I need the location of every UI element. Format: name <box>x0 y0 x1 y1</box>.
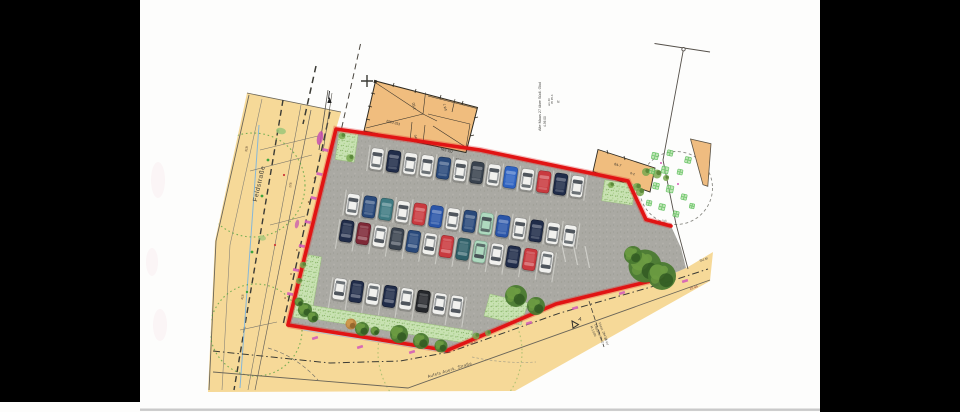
svg-text:Alte Maas 27 über Südl. Gbd: Alte Maas 27 über Südl. Gbd <box>538 82 542 131</box>
svg-text:4-56 00: 4-56 00 <box>543 116 547 127</box>
svg-text:05 95-6: 05 95-6 <box>550 94 554 104</box>
